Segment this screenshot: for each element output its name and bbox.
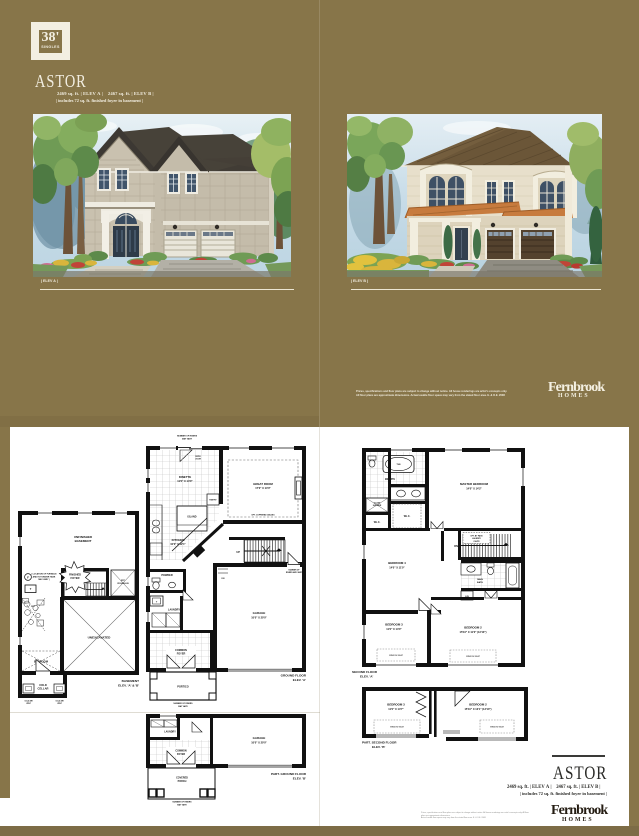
svg-text:PORTICO: PORTICO <box>177 686 188 689</box>
svg-text:17'0" X 14'0": 17'0" X 14'0" <box>255 486 271 490</box>
svg-text:ELEV. 'B': ELEV. 'B' <box>293 776 306 780</box>
svg-text:BEDROOM 2: BEDROOM 2 <box>464 626 482 630</box>
svg-text:GARAGE: GARAGE <box>253 611 266 615</box>
svg-text:MAY VARY |: MAY VARY | <box>38 578 50 581</box>
svg-text:VENT: VENT <box>57 703 62 705</box>
svg-text:CHUTE: CHUTE <box>473 541 480 543</box>
svg-text:NUMBER OF RISERS: NUMBER OF RISERS <box>177 436 198 438</box>
svg-text:LAUNDRY: LAUNDRY <box>472 537 482 540</box>
svg-text:10'0" X 20'0": 10'0" X 20'0" <box>251 615 267 619</box>
svg-text:15'10" X 11'0" (13'10"): 15'10" X 11'0" (13'10") <box>460 630 487 634</box>
svg-text:LAUNDRY: LAUNDRY <box>164 731 176 734</box>
svg-text:OPT.: OPT. <box>31 606 36 608</box>
svg-text:GARAGE: GARAGE <box>253 736 266 740</box>
svg-text:OPT. COFFERED CEILING: OPT. COFFERED CEILING <box>251 515 275 517</box>
svg-text:15'10" X 12'1" (13'10"): 15'10" X 12'1" (13'10") <box>464 707 491 711</box>
svg-text:DN: DN <box>454 544 458 548</box>
svg-text:11'0" X 14'7": 11'0" X 14'7" <box>388 707 404 711</box>
svg-text:FOYER: FOYER <box>177 653 186 656</box>
svg-text:W.I.C.: W.I.C. <box>404 515 411 518</box>
svg-text:BATH: BATH <box>477 581 483 584</box>
svg-text:ROUGH-IN: ROUGH-IN <box>117 583 128 585</box>
svg-text:14'0" X 14'2": 14'0" X 14'2" <box>466 486 482 490</box>
svg-text:POWDER: POWDER <box>161 574 172 577</box>
svg-text:GLASS: GLASS <box>374 502 381 505</box>
svg-text:COLD: COLD <box>39 683 47 687</box>
svg-text:ISLAND: ISLAND <box>188 516 197 519</box>
svg-text:PANTRY: PANTRY <box>209 499 217 502</box>
svg-text:14'0" X 11'0": 14'0" X 11'0" <box>389 565 405 569</box>
svg-text:GROUND FLOOR: GROUND FLOOR <box>281 674 307 678</box>
svg-text:UP: UP <box>236 550 240 554</box>
svg-text:BASEMENT: BASEMENT <box>75 539 92 543</box>
svg-text:DINETTE: DINETTE <box>179 475 191 479</box>
svg-text:MAY VARY: MAY VARY <box>177 803 187 806</box>
svg-text:BEDROOM 2: BEDROOM 2 <box>469 703 487 707</box>
svg-text:| LOCATION OF FURNACE: | LOCATION OF FURNACE <box>31 573 57 576</box>
svg-text:ELEV. 'B': ELEV. 'B' <box>372 745 385 749</box>
svg-text:F: F <box>27 575 29 579</box>
svg-text:ELEV. 'A': ELEV. 'A' <box>293 678 306 682</box>
svg-text:MASTER BEDROOM: MASTER BEDROOM <box>460 482 489 486</box>
svg-text:NUMBER OF RISERS: NUMBER OF RISERS <box>173 703 193 705</box>
svg-text:WINDOW SEAT: WINDOW SEAT <box>466 655 481 658</box>
svg-text:BASEMENT: BASEMENT <box>122 679 139 683</box>
svg-text:FOYER: FOYER <box>71 576 80 580</box>
svg-text:W.I.C.: W.I.C. <box>374 521 381 524</box>
svg-text:3PC: 3PC <box>121 580 126 582</box>
svg-text:SHOWER: SHOWER <box>373 505 382 507</box>
svg-text:ELEV. 'A': ELEV. 'A' <box>360 674 373 678</box>
svg-text:FINISHED: FINISHED <box>69 573 81 577</box>
svg-text:MAY VARY: MAY VARY <box>182 437 193 440</box>
svg-text:LAUNDRY: LAUNDRY <box>168 609 180 612</box>
svg-text:TUB: TUB <box>397 464 402 466</box>
svg-text:AND HOT WATER TANK: AND HOT WATER TANK <box>33 575 56 578</box>
svg-text:COMMON: COMMON <box>175 649 187 652</box>
svg-text:FOYER: FOYER <box>177 753 186 756</box>
svg-text:MAIN: MAIN <box>477 578 483 581</box>
svg-text:BEDROOM 3: BEDROOM 3 <box>387 703 405 707</box>
svg-text:11'0" X 14'0": 11'0" X 14'0" <box>386 627 402 631</box>
svg-text:MAY VARY: MAY VARY <box>178 705 188 708</box>
svg-text:RISERS MAY VARY: RISERS MAY VARY <box>286 571 303 574</box>
svg-text:WINDOW SEAT: WINDOW SEAT <box>390 726 405 729</box>
svg-text:11'0" X 14'0": 11'0" X 14'0" <box>177 479 193 483</box>
svg-text:VENT: VENT <box>26 703 31 705</box>
svg-text:ELEV. 'A' & 'B': ELEV. 'A' & 'B' <box>118 683 139 687</box>
svg-text:BEDROOM 3: BEDROOM 3 <box>385 623 403 627</box>
svg-text:UNEXCAVATED: UNEXCAVATED <box>88 636 112 640</box>
svg-text:PART. GROUND FLOOR: PART. GROUND FLOOR <box>271 772 307 776</box>
svg-text:DN: DN <box>222 578 225 580</box>
svg-text:PART. SECOND FLOOR: PART. SECOND FLOOR <box>362 741 397 745</box>
svg-text:SECOND FLOOR: SECOND FLOOR <box>352 670 378 674</box>
svg-text:WINDOW SEAT: WINDOW SEAT <box>389 654 404 657</box>
svg-text:NUMBER OF RISERS: NUMBER OF RISERS <box>172 802 192 804</box>
svg-text:GREAT ROOM: GREAT ROOM <box>253 482 273 486</box>
svg-text:PORCH: PORCH <box>178 780 187 783</box>
svg-text:10'0" X 20'0": 10'0" X 20'0" <box>251 740 267 744</box>
svg-text:WINDOW SEAT: WINDOW SEAT <box>490 726 505 729</box>
svg-text:CELLAR: CELLAR <box>38 687 49 691</box>
svg-text:OPT. BY PASS: OPT. BY PASS <box>470 535 483 538</box>
svg-text:BEDROOM 4: BEDROOM 4 <box>388 561 406 565</box>
